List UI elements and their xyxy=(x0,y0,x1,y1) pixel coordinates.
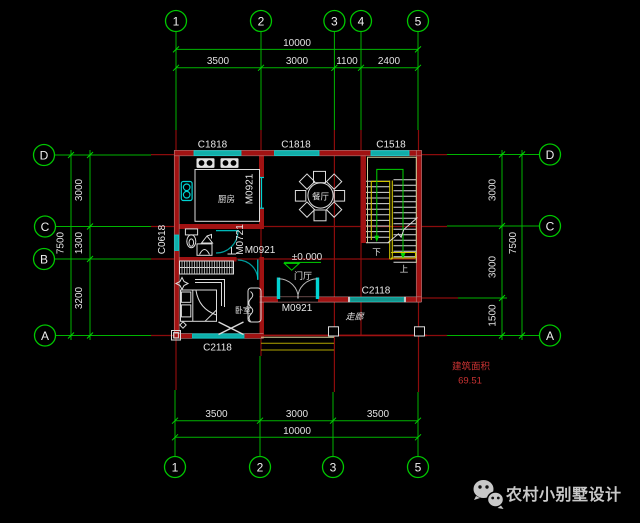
svg-text:1: 1 xyxy=(173,15,180,29)
svg-text:3500: 3500 xyxy=(207,56,230,67)
svg-text:3500: 3500 xyxy=(367,409,390,420)
svg-text:3000: 3000 xyxy=(74,178,85,201)
svg-text:1500: 1500 xyxy=(488,304,499,327)
svg-text:1: 1 xyxy=(172,461,179,475)
svg-text:C2118: C2118 xyxy=(362,286,391,297)
svg-text:1100: 1100 xyxy=(336,56,358,67)
svg-text:建筑面积: 建筑面积 xyxy=(452,361,491,373)
svg-text:3: 3 xyxy=(331,15,338,29)
svg-text:4: 4 xyxy=(358,15,365,29)
svg-text:3000: 3000 xyxy=(286,409,309,420)
svg-text:C: C xyxy=(546,220,555,234)
svg-text:C1818: C1818 xyxy=(198,140,228,151)
svg-text:7500: 7500 xyxy=(508,231,519,254)
svg-text:B: B xyxy=(40,253,48,267)
svg-text:5: 5 xyxy=(415,15,422,29)
svg-text:M0921: M0921 xyxy=(282,303,313,314)
svg-text:餐厅: 餐厅 xyxy=(312,192,330,202)
svg-text:3: 3 xyxy=(330,461,337,475)
svg-text:农村小别墅设计: 农村小别墅设计 xyxy=(505,485,622,504)
svg-text:M0921: M0921 xyxy=(245,173,256,204)
svg-text:M0921: M0921 xyxy=(245,245,276,256)
svg-text:D: D xyxy=(546,148,555,162)
svg-text:10000: 10000 xyxy=(283,38,311,49)
svg-text:A: A xyxy=(546,329,554,343)
svg-text:D: D xyxy=(40,149,49,163)
svg-text:厨房: 厨房 xyxy=(218,194,235,204)
svg-text:7500: 7500 xyxy=(56,231,67,254)
svg-text:2: 2 xyxy=(258,15,265,29)
svg-text:走廊: 走廊 xyxy=(345,312,365,322)
svg-text:±0.000: ±0.000 xyxy=(292,252,323,263)
svg-text:卧室: 卧室 xyxy=(235,305,251,315)
svg-text:3200: 3200 xyxy=(74,286,85,309)
svg-text:上: 上 xyxy=(400,264,409,274)
svg-text:3000: 3000 xyxy=(488,255,499,278)
svg-text:10000: 10000 xyxy=(283,426,311,437)
svg-text:C: C xyxy=(41,220,50,234)
svg-text:3000: 3000 xyxy=(488,178,499,201)
svg-text:2: 2 xyxy=(257,461,264,475)
svg-text:C0618: C0618 xyxy=(157,224,168,254)
svg-text:3000: 3000 xyxy=(286,56,309,67)
svg-text:下: 下 xyxy=(372,247,381,257)
svg-text:1300: 1300 xyxy=(74,231,85,254)
svg-text:A: A xyxy=(41,329,49,343)
svg-text:69.51: 69.51 xyxy=(458,376,482,387)
svg-text:C1818: C1818 xyxy=(281,140,311,151)
svg-text:5: 5 xyxy=(415,461,422,475)
svg-text:C2118: C2118 xyxy=(203,343,232,354)
svg-text:门厅: 门厅 xyxy=(294,270,312,281)
svg-text:3500: 3500 xyxy=(205,409,228,420)
svg-text:2400: 2400 xyxy=(378,56,401,67)
svg-text:C1518: C1518 xyxy=(376,140,406,151)
